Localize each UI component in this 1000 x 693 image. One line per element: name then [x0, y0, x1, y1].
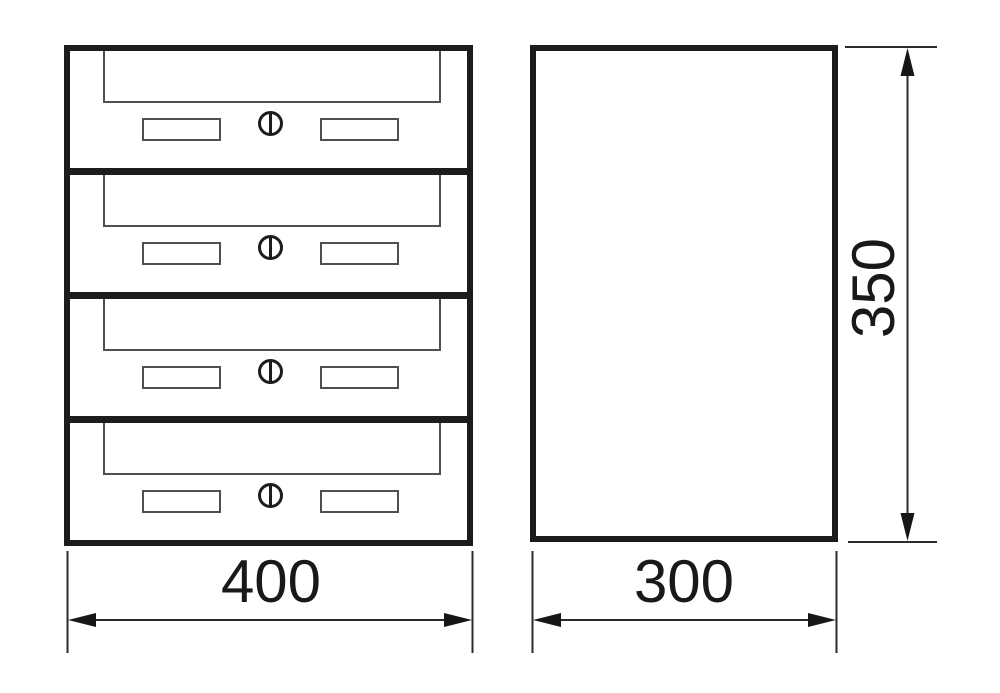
- drawing-canvas: 400 300 350: [0, 0, 1000, 693]
- dimension-label-side-height: 350: [849, 188, 899, 388]
- arrowhead-left-icon: [533, 613, 561, 627]
- arrowhead-right-icon: [444, 613, 472, 627]
- arrowhead-right-icon: [808, 613, 836, 627]
- arrowhead-down-icon: [901, 513, 915, 541]
- dimension-label-side-width: 300: [584, 552, 784, 612]
- dimension-label-front-width: 400: [171, 552, 371, 612]
- arrowhead-left-icon: [68, 613, 96, 627]
- arrowhead-up-icon: [901, 48, 915, 76]
